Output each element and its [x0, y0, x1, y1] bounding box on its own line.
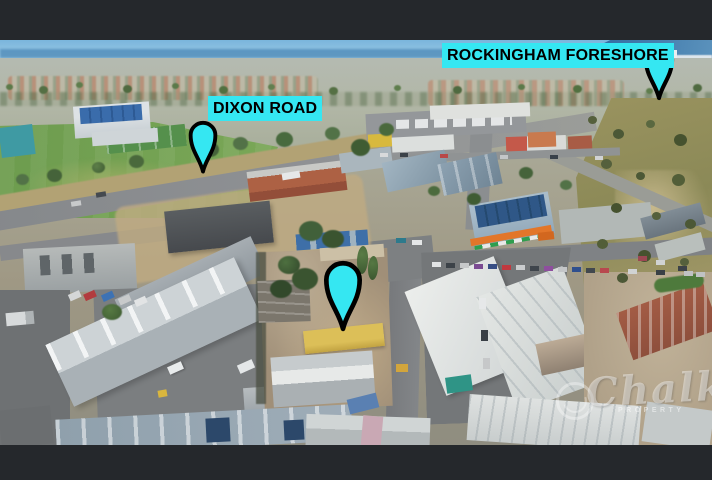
tennis-courts-left [0, 124, 36, 158]
rockingham-foreshore-label: ROCKINGHAM FORESHORE [442, 43, 674, 68]
orange-shop [528, 132, 557, 148]
tree-cluster-lot [278, 256, 300, 274]
dixon-road-label: DIXON ROAD [208, 96, 322, 121]
bush-dots-right [588, 116, 597, 124]
truck-left-edge [5, 311, 34, 326]
yellow-shop [368, 133, 393, 147]
listing-photo-frame: ROCKINGHAM FORESHORE DIXON ROAD Chalk PR… [0, 0, 712, 480]
old-parking-bays [257, 279, 310, 323]
cars-gravel-right [638, 256, 647, 261]
orange-truck [538, 231, 555, 241]
tree-row-road [92, 162, 105, 173]
office-rooftop-units [40, 252, 101, 275]
lot-fence-trees [256, 252, 266, 404]
cars-front-warehouse [479, 298, 486, 309]
moving-cars-east [396, 238, 406, 243]
yellow-crates [396, 364, 408, 372]
cars-precinct-road [380, 153, 388, 157]
dixon-road-pin-icon [186, 117, 220, 175]
pink-container [361, 415, 384, 445]
chalk-watermark-subtext: PROPERTY [618, 407, 685, 414]
rooftop-solar-a [205, 417, 230, 442]
subject-property-pin-icon [320, 257, 366, 332]
rooftop-solar-b [283, 419, 304, 440]
tree-bottom-left [102, 304, 122, 320]
bottom-shed-left [0, 405, 54, 445]
tree-row-suburbs [6, 84, 13, 90]
trees-precinct [428, 186, 440, 196]
parked-cars-east-road [432, 262, 441, 267]
